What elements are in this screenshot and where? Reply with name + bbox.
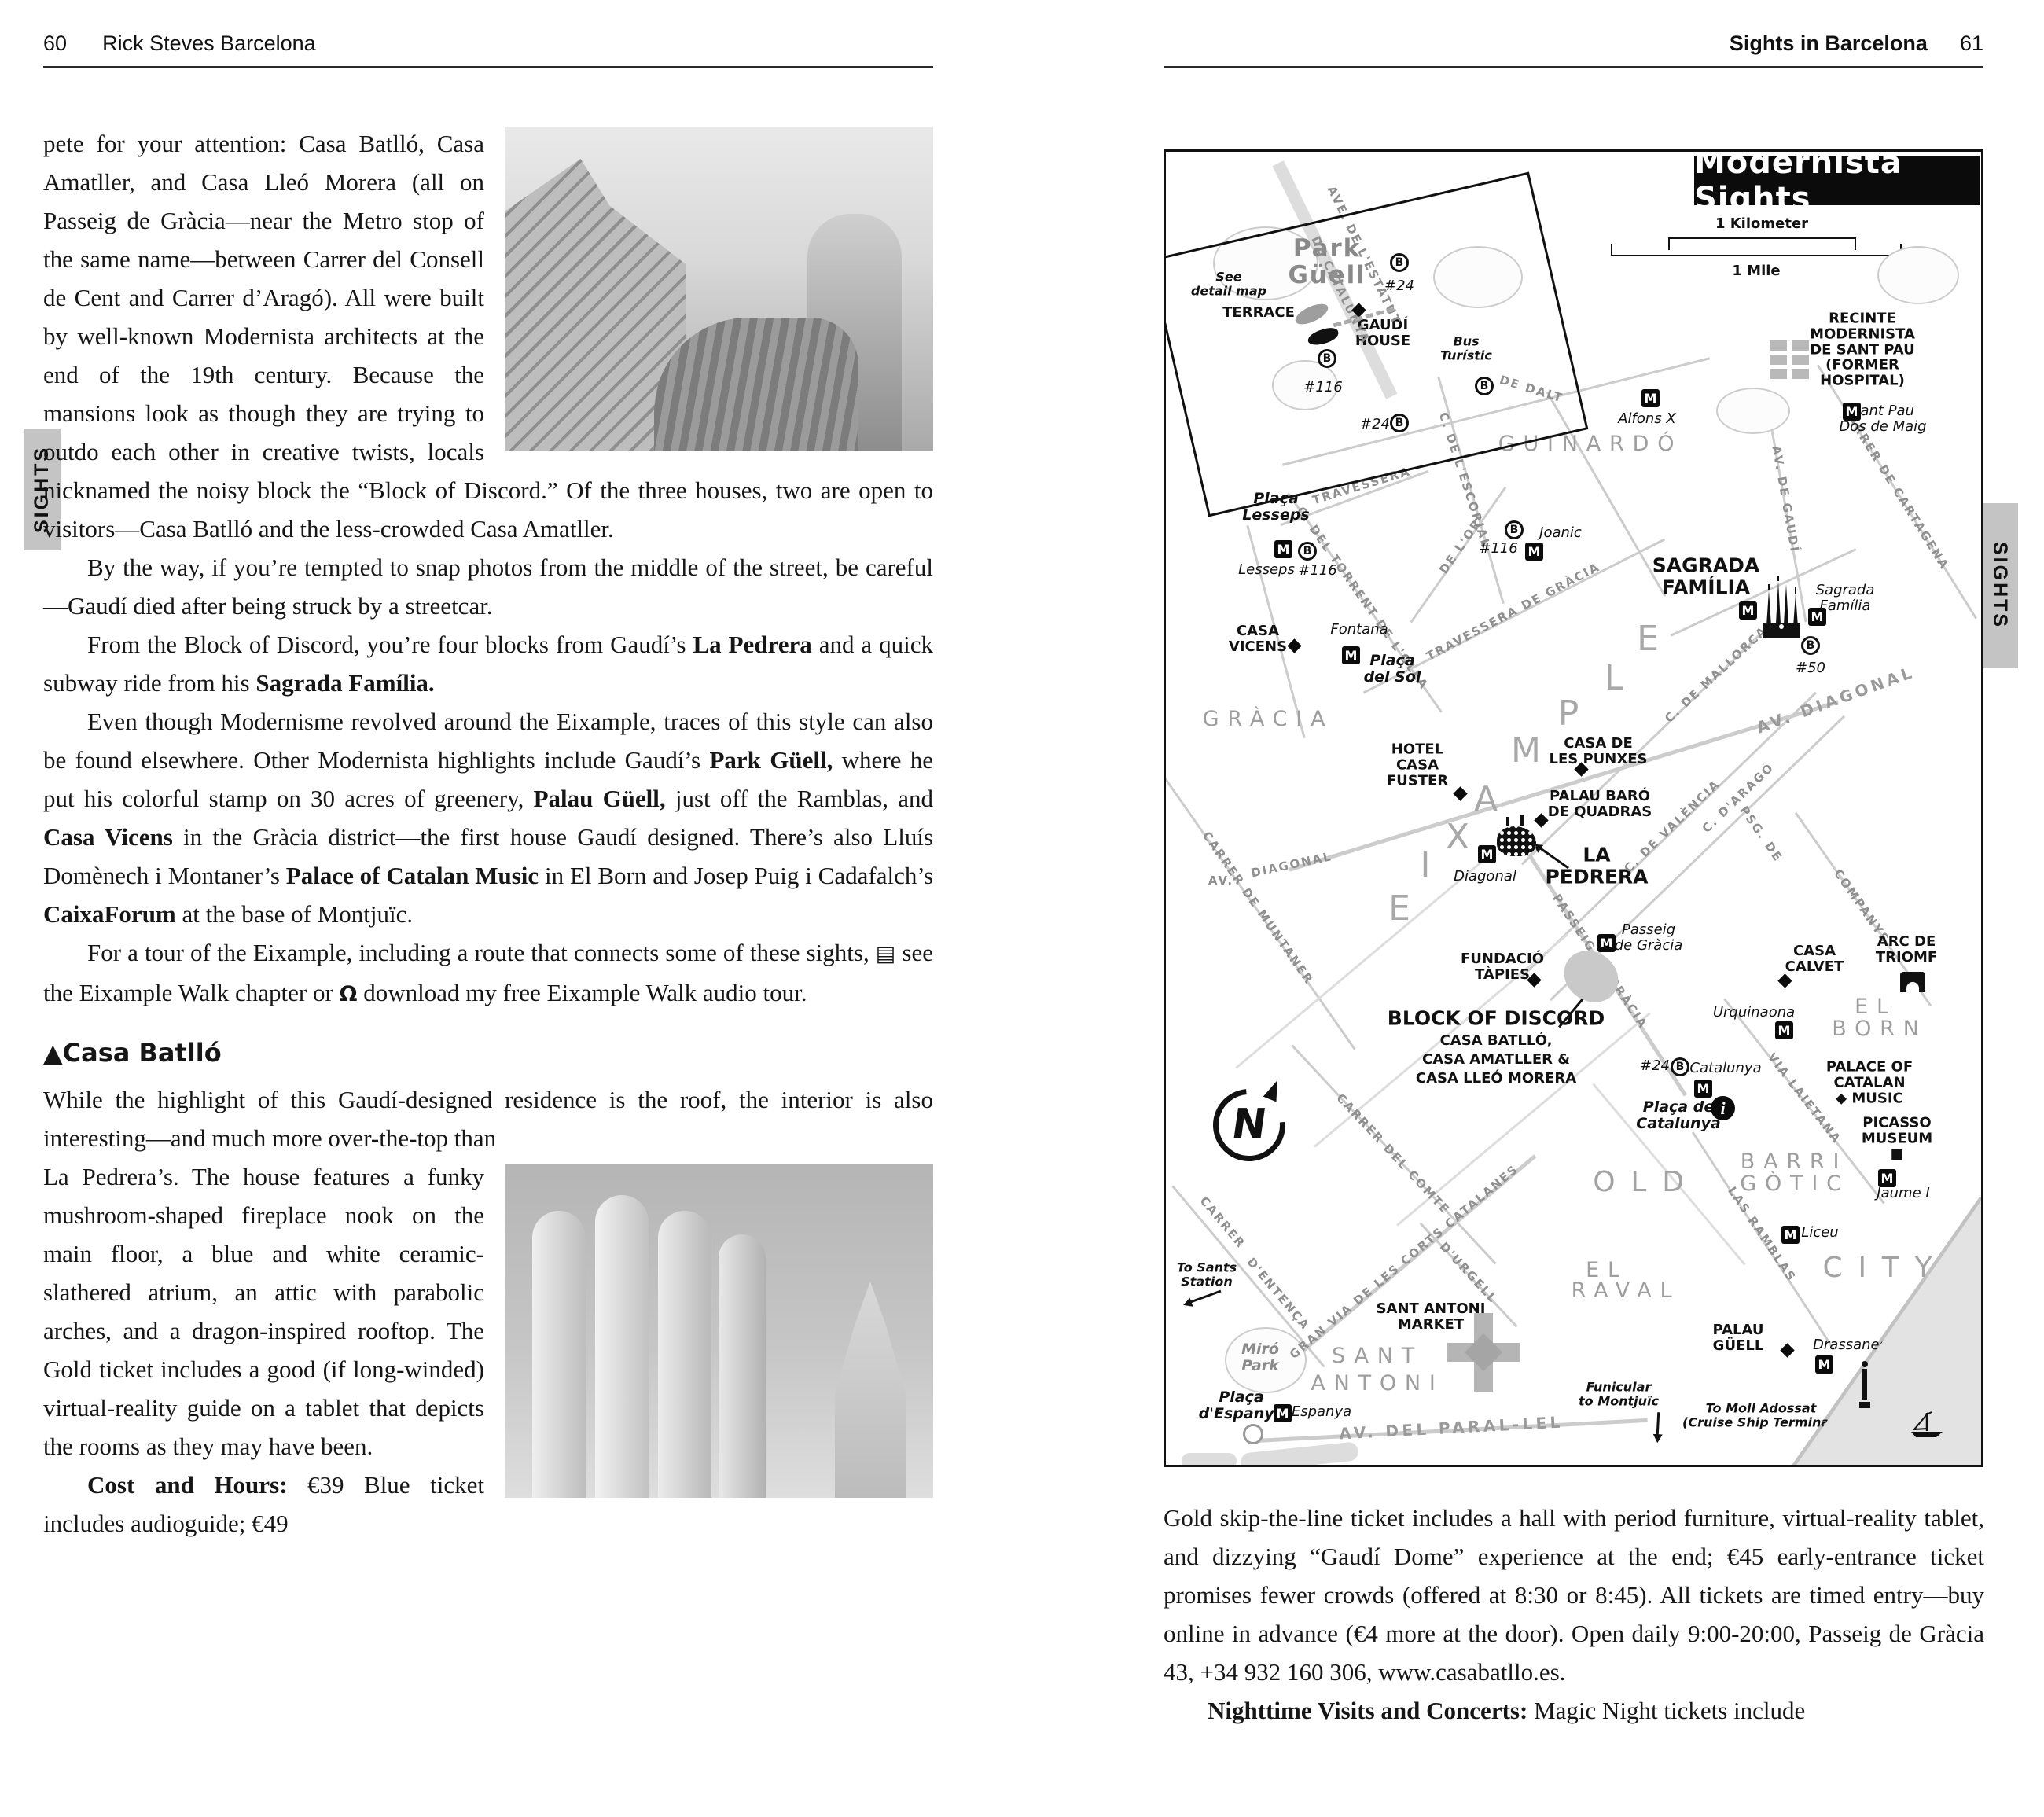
recinte-modernista-label: RECINTE MODERNISTA DE SANT PAU (FORMER H… — [1810, 311, 1915, 389]
casa-batllo-heading: ▲Casa Batlló — [43, 1034, 933, 1072]
paragraph: For a tour of the Eixample, including a … — [43, 933, 933, 1013]
park-greenery — [1716, 388, 1790, 434]
map-label: GÒTIC — [1740, 1172, 1849, 1196]
map-road — [1855, 237, 1856, 250]
sight-triangle-icon: ▲ — [43, 1038, 63, 1068]
map-label: D'URGELL — [1437, 1240, 1500, 1306]
paragraph: La Pedrera’s. The house features a funky… — [43, 1157, 933, 1466]
sight-diamond-marker — [1534, 813, 1548, 827]
map-title-bar: Modernista Sights — [1694, 156, 1980, 205]
map-label: TRAVESSERA DE GRÀCIA — [1425, 561, 1602, 664]
right-page-number: 61 — [1960, 31, 1983, 55]
map-label: Plaça de Catalunya — [1636, 1099, 1720, 1132]
metro-marker: M — [1843, 403, 1861, 421]
palau-guell-label: PALAU GÜELL — [1713, 1322, 1764, 1354]
map-label: ANTONI — [1311, 1372, 1443, 1396]
map-label: DIAGONAL — [1250, 850, 1333, 880]
casa-batllo-roofline-photo — [505, 127, 933, 451]
metro-marker: M — [1878, 1169, 1896, 1187]
metro-marker: M — [1694, 1080, 1712, 1098]
right-header-rule — [1164, 66, 1983, 68]
bus-stop-marker: B — [1671, 1057, 1689, 1076]
sagrada-familia-church-icon — [1761, 576, 1802, 638]
map-label: P — [1558, 695, 1579, 733]
hospital-block — [1792, 355, 1809, 365]
hospital-block — [1792, 369, 1809, 379]
palau-baro-de-quadras-label: PALAU BARÓ DE QUADRAS — [1548, 789, 1652, 820]
photo-chimney — [532, 1211, 586, 1498]
paragraph: Gold skip-the-line ticket includes a hal… — [1164, 1499, 1984, 1691]
arc-de-triomf-label: ARC DE TRIOMF — [1876, 934, 1937, 966]
map-label: CASA BATLLÓ, — [1440, 1033, 1553, 1049]
park-greenery — [1877, 246, 1959, 304]
photo-chimney — [658, 1211, 711, 1498]
montjuic-blob — [1182, 1453, 1237, 1467]
book-icon: ▤ — [876, 942, 896, 966]
map-label: E — [1388, 890, 1410, 928]
sights-tab-right: SIGHTS — [1981, 503, 2018, 668]
hospital-block — [1770, 369, 1787, 379]
metro-marker: M — [1775, 1021, 1793, 1039]
left-column: pete for your attention: Casa Batlló, Ca… — [43, 124, 933, 1543]
metro-marker: M — [1342, 646, 1360, 664]
map-label: #24 — [1640, 1058, 1670, 1074]
map-label: Fontana — [1330, 622, 1388, 638]
metro-marker: M — [1478, 845, 1496, 863]
map-label: X — [1446, 818, 1469, 856]
map-road — [1611, 244, 1612, 256]
la-pedrera-building-icon — [1497, 826, 1536, 856]
arrowhead — [1652, 1434, 1663, 1444]
modernista-sights-map: See detail mapPark GüellTERRACEGAUDÍ HOU… — [1164, 149, 1983, 1467]
palace-of-catalan-music-label: PALACE OF CATALAN ◆ MUSIC — [1826, 1059, 1913, 1105]
map-label: #50 — [1796, 660, 1825, 676]
photo-chimney — [595, 1195, 649, 1498]
sight-diamond-marker — [1287, 638, 1301, 653]
paragraph: Even though Modernisme revolved around t… — [43, 702, 933, 933]
tourist-info-icon: i — [1711, 1096, 1735, 1120]
casa-batllo-chimneys-photo — [505, 1164, 933, 1498]
map-road — [1668, 237, 1670, 250]
map-label: CARRER DEL COMTE — [1334, 1091, 1453, 1217]
bus-stop-marker: B — [1801, 636, 1820, 655]
hospital-block — [1770, 340, 1787, 351]
map-label: CARRER DE MUNTANER — [1200, 829, 1315, 987]
sant-antoni-market-building — [1447, 1313, 1520, 1392]
scale-mile-label: 1 Mile — [1732, 263, 1780, 279]
photo-chimney — [719, 1234, 766, 1498]
left-header-title: Rick Steves Barcelona — [102, 31, 316, 55]
moll-adossat-note: To Moll Adossat (Cruise Ship Terminal) — [1682, 1401, 1840, 1429]
hospital-block — [1792, 340, 1809, 351]
picasso-museum-label: PICASSO MUSEUM ■ — [1855, 1115, 1939, 1161]
map-label: Urquinaona — [1713, 1005, 1795, 1021]
left-running-head: 60 Rick Steves Barcelona — [43, 31, 316, 56]
map-label: E — [1637, 620, 1659, 658]
map-label: Passeig de Gràcia — [1615, 922, 1683, 954]
map-label: Drassanes — [1813, 1337, 1887, 1353]
bus-stop-marker: B — [1505, 520, 1524, 539]
map-label: Liceu — [1801, 1225, 1838, 1241]
map-label: C. DE MALLORCA — [1663, 624, 1770, 726]
hotel-casa-fuster-label: HOTEL CASA FUSTER — [1387, 741, 1448, 788]
map-label: D'ENTENÇA — [1244, 1256, 1312, 1333]
map-label: L — [1605, 660, 1624, 697]
left-header-rule — [43, 66, 933, 68]
metro-marker: M — [1525, 543, 1543, 561]
map-road — [1612, 255, 1901, 256]
casa-calvet-label: CASA CALVET — [1785, 943, 1844, 975]
paragraph: pete for your attention: Casa Batlló, Ca… — [43, 124, 933, 548]
metro-marker: M — [1274, 1404, 1292, 1422]
map-label: PSG. DE — [1737, 804, 1785, 865]
sailboat-icon — [1908, 1411, 1946, 1438]
sight-diamond-marker — [1453, 786, 1467, 800]
hospital-block — [1770, 355, 1787, 365]
map-label: A — [1474, 781, 1498, 818]
map-label: OLD — [1593, 1167, 1700, 1198]
map-label: Plaça d'Espanya — [1199, 1389, 1285, 1422]
map-label: BORN — [1832, 1017, 1927, 1041]
paragraph: By the way, if you’re tempted to snap ph… — [43, 548, 933, 625]
map-label: Joanic — [1539, 525, 1582, 541]
map-label: RAVAL — [1572, 1279, 1681, 1303]
map-label: CASA AMATLLER & — [1422, 1052, 1570, 1068]
casa-de-les-punxes-label: CASA DE LES PUNXES — [1549, 736, 1647, 767]
map-road — [1669, 237, 1855, 239]
sight-diamond-marker — [1780, 1343, 1794, 1357]
paragraph: Nighttime Visits and Concerts: Magic Nig… — [1164, 1691, 1984, 1730]
to-sants-station-note: To Sants Station — [1177, 1260, 1237, 1288]
arc-de-triomf-icon — [1900, 972, 1925, 992]
map-label: DE L'OR — [1437, 517, 1484, 576]
paragraph: While the highlight of this Gaudí-design… — [43, 1080, 933, 1157]
north-compass-icon: N — [1213, 1089, 1285, 1161]
map-label: CASA LLEÓ MORERA — [1416, 1071, 1576, 1087]
columbus-column-icon — [1858, 1361, 1872, 1408]
metro-marker: M — [1781, 1226, 1800, 1244]
right-header-title: Sights in Barcelona — [1730, 31, 1928, 55]
funicular-note: Funicular to Montjuïc — [1579, 1380, 1659, 1407]
bus-stop-marker: B — [1298, 542, 1317, 561]
pointer-arrow — [1656, 1412, 1660, 1436]
metro-marker: M — [1274, 540, 1292, 558]
metro-marker: M — [1815, 1355, 1833, 1374]
map-label: Plaça del Sol — [1364, 653, 1421, 686]
map-label: #116 — [1479, 541, 1517, 557]
arrowhead — [1182, 1298, 1193, 1310]
map-label: I — [1421, 847, 1431, 885]
map-label: BARRI — [1741, 1150, 1847, 1174]
sagrada-familia-label: SAGRADA FAMÍLIA — [1652, 555, 1760, 598]
pointer-arrow — [1189, 1290, 1221, 1304]
metro-marker: M — [1597, 934, 1616, 952]
metro-marker: M — [1808, 608, 1826, 626]
miro-park-label: Miró Park — [1241, 1341, 1279, 1374]
map-label: Lesseps — [1238, 562, 1295, 578]
headphones-icon: Ω — [340, 982, 358, 1006]
map-label: SANT — [1332, 1344, 1423, 1368]
map-label: Diagonal — [1454, 869, 1516, 885]
paragraph: From the Block of Discord, you’re four b… — [43, 625, 933, 702]
scale-kilometer-label: 1 Kilometer — [1715, 216, 1808, 232]
map-label: Catalunya — [1689, 1061, 1761, 1076]
map-label: M — [1511, 732, 1541, 770]
district-gracia: GRÀCIA — [1203, 708, 1334, 731]
metro-marker: M — [1641, 389, 1660, 407]
espanya-roundabout — [1243, 1424, 1263, 1444]
sight-diamond-marker — [1777, 973, 1792, 988]
photo-spire — [835, 1282, 906, 1498]
map-label: EL — [1855, 995, 1897, 1019]
book-spread: 60 Rick Steves Barcelona Sights in Barce… — [0, 0, 2044, 1817]
map-label: #116 — [1298, 563, 1336, 579]
casa-vicens-label: CASA VICENS — [1229, 623, 1287, 655]
right-running-head: Sights in Barcelona 61 — [1164, 31, 1983, 56]
map-label: Espanya — [1292, 1404, 1351, 1420]
right-column: Gold skip-the-line ticket includes a hal… — [1164, 1499, 1984, 1730]
map-label: Alfons X — [1618, 411, 1676, 427]
map-label: AV. DE GAUDÍ — [1770, 445, 1801, 554]
map-label: Jaume I — [1877, 1186, 1929, 1201]
metro-marker: M — [1739, 601, 1757, 620]
left-page-number: 60 — [43, 31, 67, 55]
map-label: AV. DEL PARAL-LEL — [1339, 1414, 1564, 1443]
